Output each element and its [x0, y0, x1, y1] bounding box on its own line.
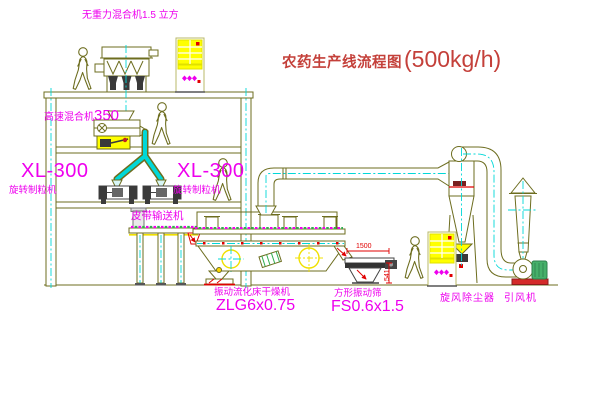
flow-diagram-canvas: 农药生产线流程图 (500kg/h) 无重力混合机1.5 立方 高速混合机350… — [0, 0, 600, 403]
person-icon — [405, 237, 423, 279]
belt-conveyor — [129, 227, 198, 286]
person-icon — [73, 48, 91, 90]
label-cyclone: 旋风除尘器 — [440, 294, 495, 304]
dimension-screen-height: 541 — [384, 269, 391, 281]
label-granulator-right-name: 旋转制粒机 — [173, 186, 221, 196]
dimension-screen-length: 1500 — [356, 243, 372, 250]
label-high-speed-mixer: 高速混合机350 — [44, 108, 119, 123]
control-cabinet-lower — [427, 232, 457, 286]
label-granulator-right-model: XL-300 — [177, 161, 245, 181]
granulator-left — [99, 180, 137, 204]
label-granulator-left-model: XL-300 — [21, 161, 89, 181]
label-fan: 引风机 — [504, 294, 537, 304]
title-text: 农药生产线流程图 — [282, 51, 402, 72]
label-no-gravity-mixer: 无重力混合机1.5 立方 — [82, 11, 179, 21]
label-dryer-model: ZLG6x0.75 — [216, 298, 295, 314]
diagram-title: 农药生产线流程图 (500kg/h) — [282, 46, 501, 73]
title-capacity: (500kg/h) — [404, 46, 501, 73]
label-screen-model: FS0.6x1.5 — [331, 299, 404, 315]
label-belt-conveyor: 皮带输送机 — [131, 211, 184, 222]
discharge-spouts — [108, 76, 145, 90]
control-cabinet-upper — [175, 38, 205, 92]
cyclone-separator — [446, 147, 520, 284]
person-icon — [152, 103, 170, 145]
label-high-speed-mixer-name: 高速混合机 — [44, 112, 94, 123]
main-duct — [256, 162, 451, 215]
label-high-speed-mixer-model: 350 — [94, 107, 119, 124]
label-granulator-left-name: 旋转制粒机 — [9, 186, 57, 196]
induced-draft-fan — [512, 259, 548, 285]
fluid-bed-dryer — [193, 212, 352, 285]
